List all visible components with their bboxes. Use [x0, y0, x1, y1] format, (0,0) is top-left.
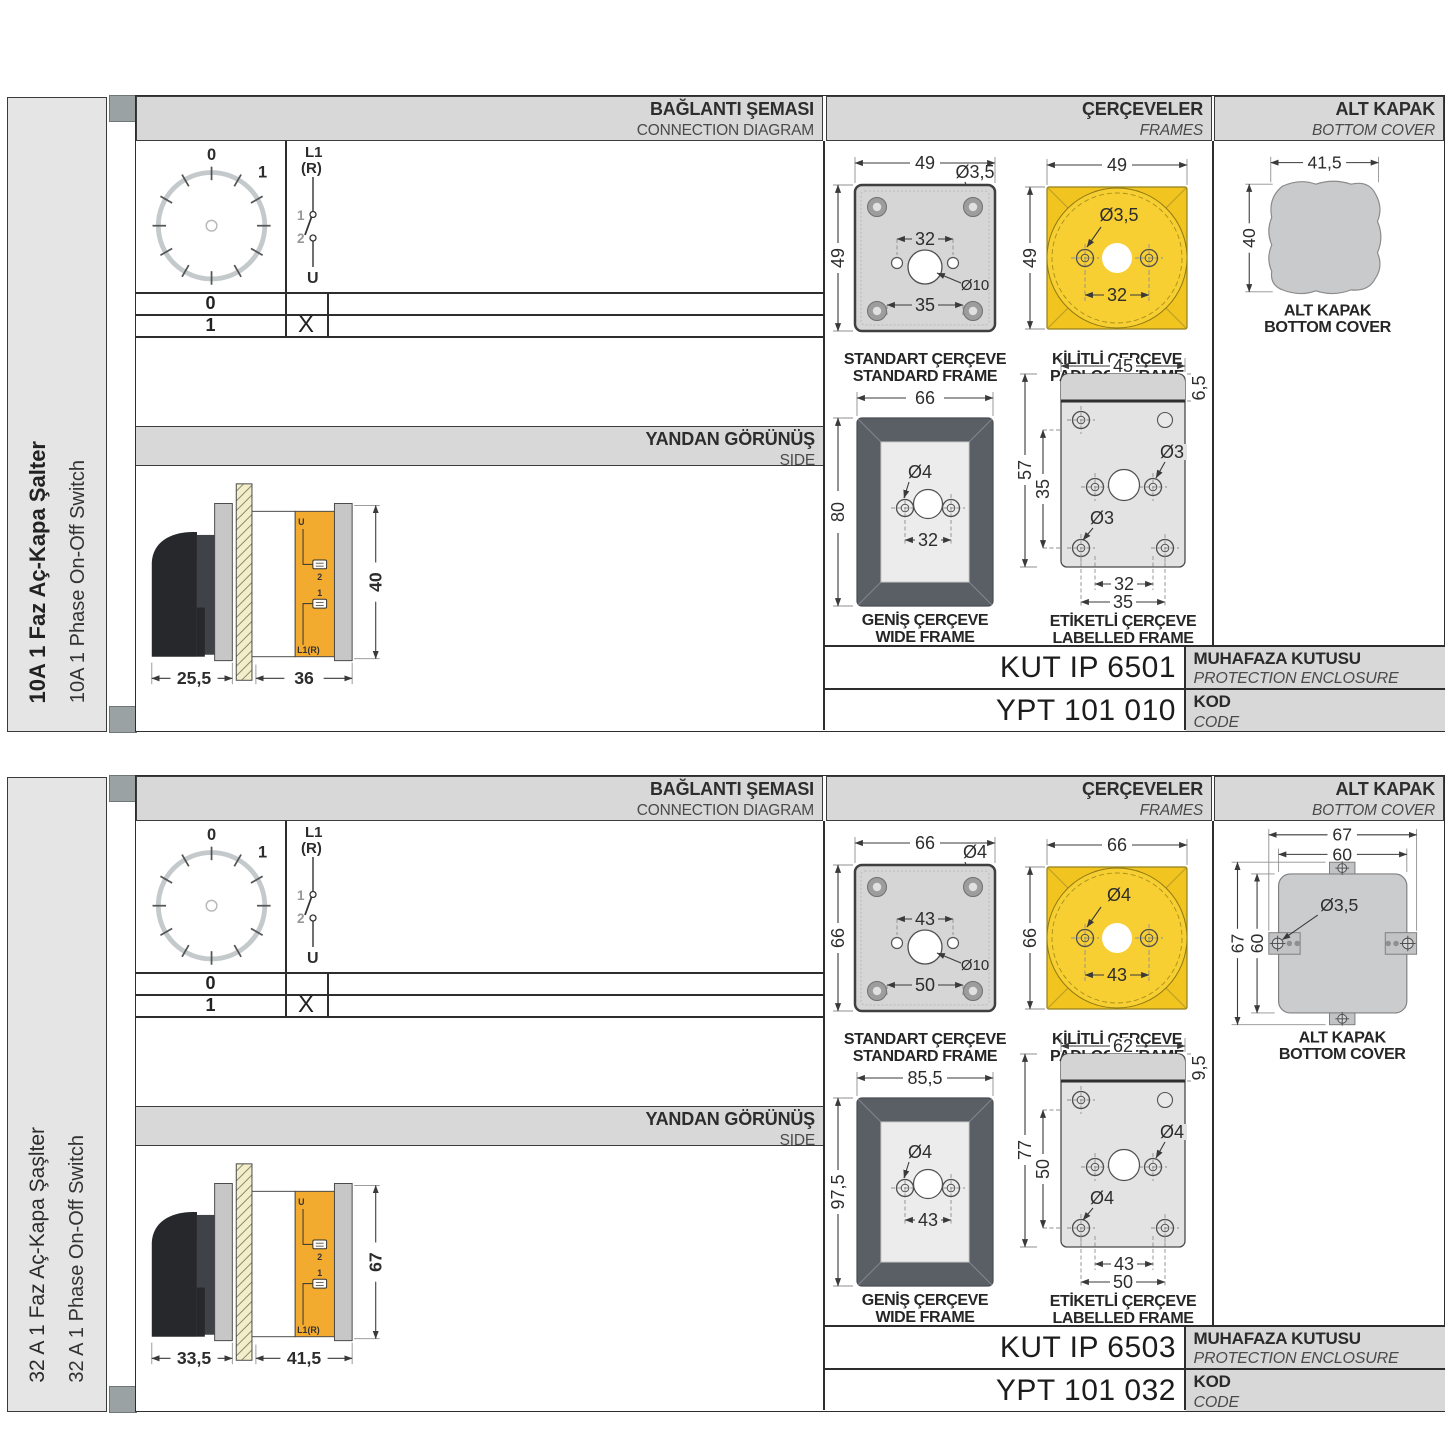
dim-body-depth: 41,5: [287, 1348, 322, 1368]
enclosure-label: MUHAFAZA KUTUSU PROTECTION ENCLOSURE: [1186, 647, 1445, 689]
table-line: [285, 141, 287, 336]
cover-title-en: BOTTOM COVER: [1264, 318, 1391, 336]
dim-pad-span: 43: [1107, 965, 1127, 985]
labelled-frame-title-tr: ETİKETLİ ÇERÇEVE: [1050, 612, 1197, 630]
dim-cover-width: 41,5: [1307, 153, 1341, 173]
dim-lab-strip: 6,5: [1189, 375, 1209, 400]
section-content: BAĞLANTI ŞEMASI CONNECTION DIAGRAM ÇERÇE…: [135, 775, 1445, 1412]
product-section-10a: 10A 1 Faz Aç-Kapa Şalter 10A 1 Phase On-…: [7, 95, 1445, 736]
cover-title-en: BOTTOM COVER: [1279, 1045, 1406, 1063]
table-line: [327, 292, 329, 336]
product-name-tr: 10A 1 Faz Aç-Kapa Şalter: [25, 441, 51, 703]
dim-std-width: 66: [915, 833, 935, 853]
dim-front-depth: 25,5: [177, 668, 212, 688]
dim-wide-width: 66: [915, 388, 935, 408]
dim-std-span-inner: 32: [915, 229, 935, 249]
section-content: BAĞLANTI ŞEMASI CONNECTION DIAGRAM ÇERÇE…: [135, 95, 1445, 732]
standard-frame-title-tr: STANDART ÇERÇEVE: [844, 1031, 1007, 1048]
table-line: [136, 336, 823, 338]
enclosure-code: KUT IP 6503: [826, 1328, 1176, 1368]
dim-lab-hole-right: Ø3: [1160, 442, 1184, 462]
dim-lab-height: 57: [1015, 460, 1035, 480]
header-bottom-cover: ALT KAPAK BOTTOM COVER: [1214, 776, 1444, 821]
dim-lab-height: 77: [1015, 1140, 1035, 1160]
dim-std-span-outer: 50: [915, 975, 935, 995]
standard-frame-drawing: 49 Ø3,5 49 32 Ø10 35 STANDART ÇERÇEVE: [825, 143, 1020, 383]
header-frames: ÇERÇEVELER FRAMES: [826, 96, 1212, 141]
table-line: [136, 1016, 823, 1018]
catalog-page: { "sections": [ { "side_label_tr": "10A …: [0, 0, 1445, 1445]
wide-frame-title-tr: GENİŞ ÇERÇEVE: [862, 611, 989, 629]
labelled-frame-title-tr: ETİKETLİ ÇERÇEVE: [1050, 1292, 1197, 1310]
dim-wide-span: 32: [918, 530, 938, 550]
dim-std-height: 66: [828, 928, 848, 948]
pole-label-l1: L1: [305, 144, 323, 161]
dim-std-height: 49: [828, 248, 848, 268]
dim-lab-span-outer: 50: [1113, 1272, 1133, 1292]
terminal-1: 1: [317, 588, 322, 598]
dim-std-center-hole: Ø10: [961, 277, 989, 294]
dim-lab-span-inner: 32: [1114, 574, 1134, 594]
dim-wide-hole: Ø4: [908, 462, 932, 482]
dim-wide-hole: Ø4: [908, 1142, 932, 1162]
enclosure-label: MUHAFAZA KUTUSU PROTECTION ENCLOSURE: [1186, 1327, 1445, 1369]
pole-label-r: (R): [301, 840, 322, 857]
dim-cover-height: 40: [1239, 228, 1259, 248]
dim-pad-span: 32: [1107, 285, 1127, 305]
header-connection: BAĞLANTI ŞEMASI CONNECTION DIAGRAM: [136, 776, 823, 821]
dim-wide-height: 80: [828, 502, 848, 522]
contact-1: 1: [297, 208, 305, 223]
contact-mark: X: [285, 313, 327, 336]
padlock-frame-drawing: 66 66 Ø4 43 KİLİTLİ ÇERÇEVE PADLOCK FRAM…: [1017, 823, 1212, 1063]
dim-pad-hole: Ø4: [1107, 885, 1131, 905]
dim-std-center-hole: Ø10: [961, 957, 989, 974]
dim-lab-width: 45: [1113, 356, 1133, 376]
product-code: YPT 101 032: [826, 1372, 1176, 1410]
product-code: YPT 101 010: [826, 692, 1176, 730]
dim-pad-height: 66: [1020, 928, 1040, 948]
pole-label-u: U: [307, 950, 319, 967]
binder-square: [109, 775, 137, 802]
dim-cover-w-outer: 67: [1332, 825, 1352, 845]
wide-frame-title-en: WIDE FRAME: [875, 629, 975, 646]
position-row-1: 1: [136, 314, 285, 336]
wide-frame-drawing: 66 80 Ø4 32 GENİŞ ÇERÇEVE WIDE FRAME: [825, 378, 1020, 643]
dim-height: 40: [366, 572, 386, 592]
dim-lab-span-inner: 43: [1114, 1254, 1134, 1274]
header-bottom-cover: ALT KAPAK BOTTOM COVER: [1214, 96, 1444, 141]
dim-cover-h-outer: 67: [1227, 934, 1247, 954]
dim-std-width: 49: [915, 153, 935, 173]
contact-mark: X: [285, 993, 327, 1016]
switch-dial-diagram: 0 1: [138, 824, 288, 970]
dim-lab-strip: 9,5: [1189, 1055, 1209, 1080]
dim-cover-hole: Ø3,5: [1320, 895, 1358, 915]
header-side-view: YANDAN GÖRÜNÜŞ SIDE: [136, 426, 823, 466]
cover-title-tr: ALT KAPAK: [1284, 301, 1372, 319]
binder-square: [109, 1386, 137, 1413]
contact-1: 1: [297, 888, 305, 903]
terminal-l1r: L1(R): [297, 645, 320, 655]
terminal-u: U: [298, 517, 304, 527]
product-section-32a: 32 A 1 Faz Aç-Kapa Şaşlter 32 A 1 Phase …: [7, 775, 1445, 1416]
dim-cover-h-inner: 60: [1247, 933, 1267, 953]
dim-pad-width: 66: [1107, 835, 1127, 855]
dim-height: 67: [366, 1252, 386, 1272]
code-label: KOD CODE: [1186, 690, 1445, 731]
pole-label-r: (R): [301, 160, 322, 177]
dim-pad-width: 49: [1107, 155, 1127, 175]
code-label: KOD CODE: [1186, 1370, 1445, 1411]
dim-lab-width: 62: [1113, 1036, 1133, 1056]
wide-frame-drawing: 85,5 97,5 Ø4 43 GENİŞ ÇERÇEVE WIDE FRAME: [825, 1058, 1020, 1323]
pole-schematic: L1 (R) 1 2 U: [287, 823, 347, 968]
dim-body-depth: 36: [294, 668, 314, 688]
side-view-drawing: U 2 1 L1(R) 25,5 36 40: [140, 470, 415, 701]
switch-dial-diagram: 0 1: [138, 144, 288, 290]
dim-std-span-outer: 35: [915, 295, 935, 315]
dial-pos-1: 1: [258, 843, 267, 861]
table-line: [285, 821, 287, 1016]
dim-pad-height: 49: [1020, 248, 1040, 268]
dim-std-hole: Ø4: [963, 842, 987, 862]
dim-front-depth: 33,5: [177, 1348, 212, 1368]
dim-wide-width: 85,5: [907, 1068, 942, 1088]
binder-square: [109, 95, 137, 122]
standard-frame-title-tr: STANDART ÇERÇEVE: [844, 351, 1007, 368]
table-line: [327, 972, 329, 1016]
labelled-frame-drawing: 45 6,5 57 35 Ø3 Ø3: [1017, 352, 1212, 644]
product-name-en: 10A 1 Phase On-Off Switch: [67, 460, 90, 703]
dial-pos-0: 0: [207, 146, 216, 164]
labelled-frame-drawing: 62 9,5 77 50 Ø4 Ø4: [1017, 1032, 1212, 1324]
binder-square: [109, 706, 137, 733]
standard-frame-drawing: 66 Ø4 66 43 Ø10 50 STANDART ÇERÇEVE S: [825, 823, 1020, 1063]
position-row-0: 0: [136, 292, 285, 314]
dial-pos-1: 1: [258, 163, 267, 181]
contact-2: 2: [297, 911, 305, 926]
terminal-u: U: [298, 1197, 304, 1207]
dim-lab-hole-left: Ø4: [1090, 1188, 1114, 1208]
padlock-frame-drawing: 49 49 Ø3,5 32 KİLİTLİ ÇERÇEVE PADLOCK FR…: [1017, 143, 1212, 383]
dim-wide-height: 97,5: [828, 1174, 848, 1209]
dim-lab-hole-left: Ø3: [1090, 508, 1114, 528]
pole-schematic: L1 (R) 1 2 U: [287, 143, 347, 288]
wide-frame-title-en: WIDE FRAME: [875, 1309, 975, 1326]
pole-label-l1: L1: [305, 824, 323, 841]
header-connection: BAĞLANTI ŞEMASI CONNECTION DIAGRAM: [136, 96, 823, 141]
bottom-cover-drawing: 67 60 67 60 Ø3,5: [1214, 823, 1444, 1060]
bottom-cover-drawing: 41,5 40 ALT KAPAK BOTTOM COVER: [1214, 143, 1444, 334]
side-label-panel: 32 A 1 Faz Aç-Kapa Şaşlter 32 A 1 Phase …: [7, 777, 107, 1412]
terminal-2: 2: [317, 572, 322, 582]
dim-std-hole: Ø3,5: [955, 162, 994, 182]
position-row-1: 1: [136, 994, 285, 1016]
dim-lab-span-outer: 35: [1113, 592, 1133, 612]
side-label-panel: 10A 1 Faz Aç-Kapa Şalter 10A 1 Phase On-…: [7, 97, 107, 732]
dim-wide-span: 43: [918, 1210, 938, 1230]
product-name-tr: 32 A 1 Faz Aç-Kapa Şaşlter: [26, 1127, 50, 1383]
position-row-0: 0: [136, 972, 285, 994]
terminal-l1r: L1(R): [297, 1325, 320, 1335]
enclosure-code: KUT IP 6501: [826, 648, 1176, 688]
dim-std-span-inner: 43: [915, 909, 935, 929]
terminal-1: 1: [317, 1268, 322, 1278]
header-frames: ÇERÇEVELER FRAMES: [826, 776, 1212, 821]
dim-lab-height-inner: 35: [1033, 479, 1053, 499]
terminal-2: 2: [317, 1252, 322, 1262]
pole-label-u: U: [307, 270, 319, 287]
contact-2: 2: [297, 231, 305, 246]
dim-pad-hole: Ø3,5: [1099, 205, 1138, 225]
cover-title-tr: ALT KAPAK: [1299, 1028, 1387, 1046]
header-side-view: YANDAN GÖRÜNÜŞ SIDE: [136, 1106, 823, 1146]
dim-lab-hole-right: Ø4: [1160, 1122, 1184, 1142]
product-name-en: 32 A 1 Phase On-Off Switch: [66, 1135, 89, 1383]
dim-lab-height-inner: 50: [1033, 1159, 1053, 1179]
wide-frame-title-tr: GENİŞ ÇERÇEVE: [862, 1291, 989, 1309]
dial-pos-0: 0: [207, 826, 216, 844]
side-view-drawing: U 2 1 L1(R) 33,5 41,5 67: [140, 1150, 415, 1381]
